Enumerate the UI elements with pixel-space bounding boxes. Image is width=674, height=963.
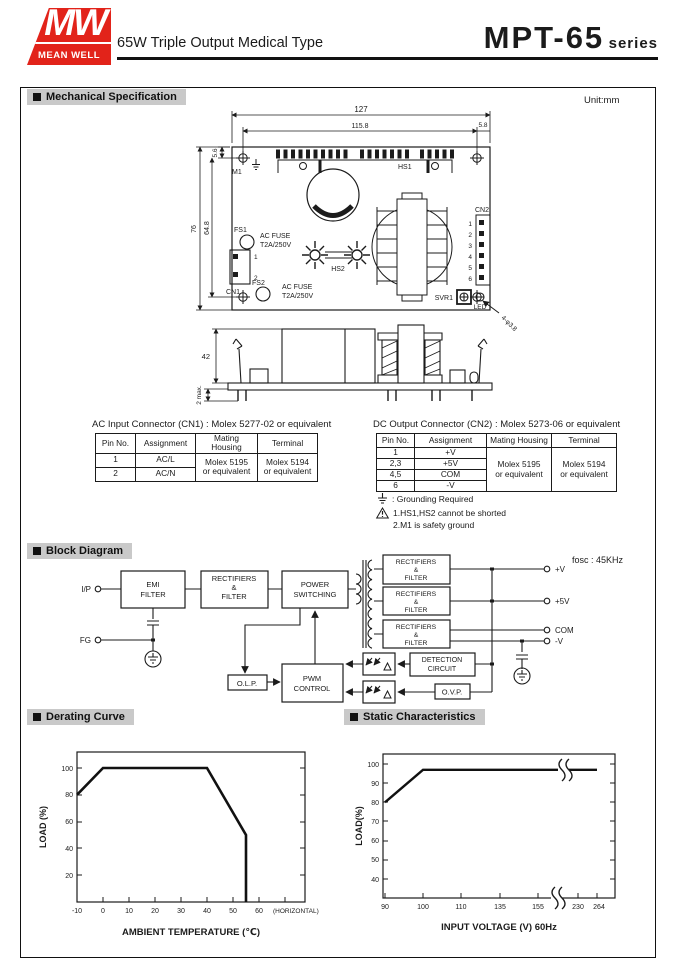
cn1-table-title: AC Input Connector (CN1) : Molex 5277-02… — [92, 419, 331, 430]
hs2-heatsink — [302, 241, 370, 269]
det-line2: CIRCUIT — [428, 666, 457, 673]
housing-line2: or equivalent — [495, 469, 543, 479]
ytick: 50 — [371, 857, 379, 864]
cn2-table-title: DC Output Connector (CN2) : Molex 5273-0… — [373, 419, 620, 430]
dim-64-8-label: 64.8 — [204, 221, 211, 235]
cell-assignment: AC/L — [136, 453, 196, 467]
terminal-line2: or equivalent — [264, 466, 312, 476]
cn1-header-row: Pin No. Assignment Mating Housing Termin… — [96, 434, 318, 454]
section-derating-curve: Derating Curve — [27, 709, 134, 725]
section-bullet-icon — [33, 93, 41, 101]
series-name: MPT-65 — [484, 20, 605, 55]
cell-housing: Molex 5195 or equivalent — [196, 453, 258, 481]
cn1-pin1: 1 — [254, 254, 258, 261]
xtick: 90 — [381, 904, 389, 911]
xtick: 264 — [593, 904, 605, 911]
ytick: 40 — [371, 877, 379, 884]
series-suffix: series — [609, 35, 658, 52]
xtick: 40 — [203, 908, 211, 915]
x-axis-title: INPUT VOLTAGE (V) 60Hz — [441, 922, 557, 933]
caution-note-2: 2.M1 is safety ground — [393, 520, 474, 530]
hs1-heatsink — [276, 154, 454, 173]
cell-pin: 6 — [377, 481, 415, 492]
fuse1-line2: T2A/250V — [260, 242, 291, 249]
fuse-fs1 — [240, 235, 254, 249]
y-axis-title: LOAD (%) — [38, 806, 48, 848]
output-nv-label: -V — [555, 637, 564, 646]
dim-76-label: 76 — [191, 225, 198, 233]
cell-assignment: AC/N — [136, 467, 196, 481]
cell-pin: 2,3 — [377, 459, 415, 470]
fuse2-line1: AC FUSE — [282, 284, 313, 291]
y-axis-title: LOAD(%) — [354, 806, 364, 846]
det-line1: DETECTION — [422, 657, 462, 664]
block-diagram: I/P FG EMI FILTER RECTIFIERS & FILTER PO… — [20, 552, 656, 714]
xtick: 110 — [455, 904, 466, 911]
ytick: 60 — [65, 819, 73, 826]
cn2-pin6: 6 — [468, 276, 472, 283]
cn1-row-1: 1 AC/L Molex 5195 or equivalent Molex 51… — [96, 453, 318, 467]
power-line2: SWITCHING — [294, 590, 337, 599]
cn1-pin2: 2 — [254, 275, 258, 282]
emi-line2: FILTER — [140, 590, 166, 599]
dim-2max-label: 2 max. — [196, 385, 203, 405]
fuse2-line2: T2A/250V — [282, 293, 313, 300]
ytick: 100 — [61, 766, 73, 773]
ytick: 90 — [371, 781, 379, 788]
rect-in-line3: FILTER — [221, 592, 247, 601]
xtick: 135 — [494, 904, 506, 911]
cn1-connector — [230, 250, 250, 284]
dim-115-8-label: 115.8 — [352, 123, 369, 130]
cell-pin: 4,5 — [377, 470, 415, 481]
emi-line1: EMI — [146, 580, 159, 589]
cn2-h-pin: Pin No. — [377, 434, 415, 448]
section-static-label: Static Characteristics — [363, 711, 476, 723]
rect3-line1: RECTIFIERS — [396, 624, 437, 631]
holes-callout-label: 4-φ3.8 — [500, 314, 519, 333]
caution-note-1-text: 1.HS1,HS2 cannot be shorted — [393, 508, 506, 518]
rect3-line2: & — [414, 632, 419, 639]
fuse-fs2 — [256, 287, 270, 301]
caution-note-1: 1.HS1,HS2 cannot be shorted — [376, 507, 506, 519]
rect3-line3: FILTER — [405, 640, 428, 647]
cn2-header-row: Pin No. Assignment Mating Housing Termin… — [377, 434, 617, 448]
xtick: 10 — [125, 908, 133, 915]
cn2-connector — [476, 215, 490, 285]
cell-assignment: +V — [415, 448, 487, 459]
section-mechanical-label: Mechanical Specification — [46, 91, 177, 103]
ytick: 60 — [371, 838, 379, 845]
cn2-pin5: 5 — [468, 265, 472, 272]
section-static-characteristics: Static Characteristics — [344, 709, 485, 725]
ytick: 100 — [367, 762, 379, 769]
cn2-pin4: 4 — [468, 254, 472, 261]
cell-assignment: +5V — [415, 459, 487, 470]
xtick: 60 — [255, 908, 263, 915]
xtick: -10 — [72, 908, 82, 915]
fosc-label: fosc : 45KHz — [572, 555, 624, 565]
cell-housing: Molex 5195 or equivalent — [487, 448, 552, 492]
cn1-h-terminal: Terminal — [258, 434, 318, 454]
derating-curve-line — [77, 768, 246, 902]
ground-icon — [377, 492, 388, 505]
cell-pin: 1 — [96, 453, 136, 467]
fuse1-line1: AC FUSE — [260, 233, 291, 240]
transformer-top-view — [372, 193, 452, 301]
olp-label: O.L.P. — [237, 679, 257, 688]
xtick: 50 — [229, 908, 237, 915]
main-capacitor — [307, 169, 359, 221]
fg-terminal-label: FG — [80, 636, 91, 645]
rect2-line2: & — [414, 599, 419, 606]
hs2-label: HS2 — [331, 266, 345, 273]
xtick: 100 — [417, 904, 429, 911]
ytick: 80 — [65, 792, 73, 799]
output-v-label: +V — [555, 565, 566, 574]
cell-terminal: Molex 5194 or equivalent — [552, 448, 617, 492]
caution-note-2-text: 2.M1 is safety ground — [393, 520, 474, 530]
dim-127-label: 127 — [354, 105, 368, 114]
xtick-suffix: (HORIZONTAL) — [273, 908, 319, 915]
output-com-label: COM — [555, 626, 574, 635]
header-rule — [117, 57, 658, 60]
cn2-pin3: 3 — [468, 243, 472, 250]
ovp-label: O.V.P. — [442, 688, 462, 697]
m1-ground-symbol — [252, 159, 260, 170]
fs1-label: FS1 — [234, 227, 247, 234]
svr1-label: SVR1 — [435, 295, 453, 302]
xtick: 20 — [151, 908, 159, 915]
derating-chart: 20 40 60 80 100 -10 0 10 20 30 40 50 60 … — [30, 735, 350, 950]
cn2-h-assign: Assignment — [415, 434, 487, 448]
section-derating-label: Derating Curve — [46, 711, 125, 723]
grounding-note-text: : Grounding Required — [392, 494, 473, 504]
cn1-table: Pin No. Assignment Mating Housing Termin… — [95, 433, 318, 482]
cn1-h-assign: Assignment — [136, 434, 196, 454]
grounding-note: : Grounding Required — [377, 492, 473, 505]
dim-5-6-label: 5.6 — [212, 148, 219, 157]
cell-pin: 2 — [96, 467, 136, 481]
rect1-line3: FILTER — [405, 575, 428, 582]
section-bullet-icon — [350, 713, 358, 721]
svr1-potentiometer — [457, 290, 471, 304]
cn2-table: Pin No. Assignment Mating Housing Termin… — [376, 433, 617, 492]
output-5v-label: +5V — [555, 597, 570, 606]
ytick: 80 — [371, 800, 379, 807]
axis-break-icon — [551, 758, 572, 909]
cn1-label: CN1 — [226, 289, 240, 296]
warning-icon — [376, 507, 389, 519]
cn2-pin2: 2 — [468, 232, 472, 239]
xtick: 0 — [101, 908, 105, 915]
derating-axes — [77, 752, 305, 902]
rect2-line3: FILTER — [405, 607, 428, 614]
rect-in-line2: & — [231, 583, 236, 592]
ytick: 40 — [65, 846, 73, 853]
pwm-line1: PWM — [303, 674, 321, 683]
pcb-side-view — [228, 325, 492, 401]
cn1-h-pin: Pin No. — [96, 434, 136, 454]
x-axis-title: AMBIENT TEMPERATURE (℃) — [122, 927, 260, 938]
cn2-row-1: 1 +V Molex 5195 or equivalent Molex 5194… — [377, 448, 617, 459]
cn2-h-housing: Mating Housing — [487, 434, 552, 448]
ytick: 70 — [371, 819, 379, 826]
mechanical-drawing: 127 115.8 5.8 5.6 76 64.8 42 2 max. 4-φ3… — [20, 87, 655, 432]
pwm-line2: CONTROL — [294, 684, 331, 693]
cell-pin: 1 — [377, 448, 415, 459]
dim-5-8-label: 5.8 — [478, 122, 487, 129]
power-line1: POWER — [301, 580, 330, 589]
m1-label: M1 — [232, 169, 242, 176]
section-bullet-icon — [33, 713, 41, 721]
cn2-h-terminal: Terminal — [552, 434, 617, 448]
cn2-label: CN2 — [475, 207, 489, 214]
led-label: LED — [474, 304, 487, 311]
cn1-h-housing: Mating Housing — [196, 434, 258, 454]
xtick: 230 — [572, 904, 584, 911]
rect1-line2: & — [414, 567, 419, 574]
rect1-line1: RECTIFIERS — [396, 559, 437, 566]
series-title: MPT-65 series — [0, 20, 658, 56]
housing-line2: or equivalent — [203, 466, 251, 476]
cn2-pin1: 1 — [468, 221, 472, 228]
datasheet-page: { "page": { "unit": "Unit:mm" }, "header… — [0, 0, 674, 963]
xtick: 155 — [532, 904, 544, 911]
unit-label: Unit:mm — [584, 95, 619, 106]
section-mechanical: Mechanical Specification — [27, 89, 186, 105]
rect-in-line1: RECTIFIERS — [212, 574, 257, 583]
cell-assignment: -V — [415, 481, 487, 492]
ip-terminal-label: I/P — [81, 585, 91, 594]
static-chart: 40 50 60 70 80 90 100 90 100 110 135 155… — [350, 740, 655, 945]
pcb-top-view — [232, 147, 490, 310]
hs1-label: HS1 — [398, 164, 412, 171]
dim-42-label: 42 — [202, 352, 210, 361]
rect2-line1: RECTIFIERS — [396, 591, 437, 598]
cell-assignment: COM — [415, 470, 487, 481]
terminal-line2: or equivalent — [560, 469, 608, 479]
xtick: 30 — [177, 908, 185, 915]
ytick: 20 — [65, 873, 73, 880]
cell-terminal: Molex 5194 or equivalent — [258, 453, 318, 481]
